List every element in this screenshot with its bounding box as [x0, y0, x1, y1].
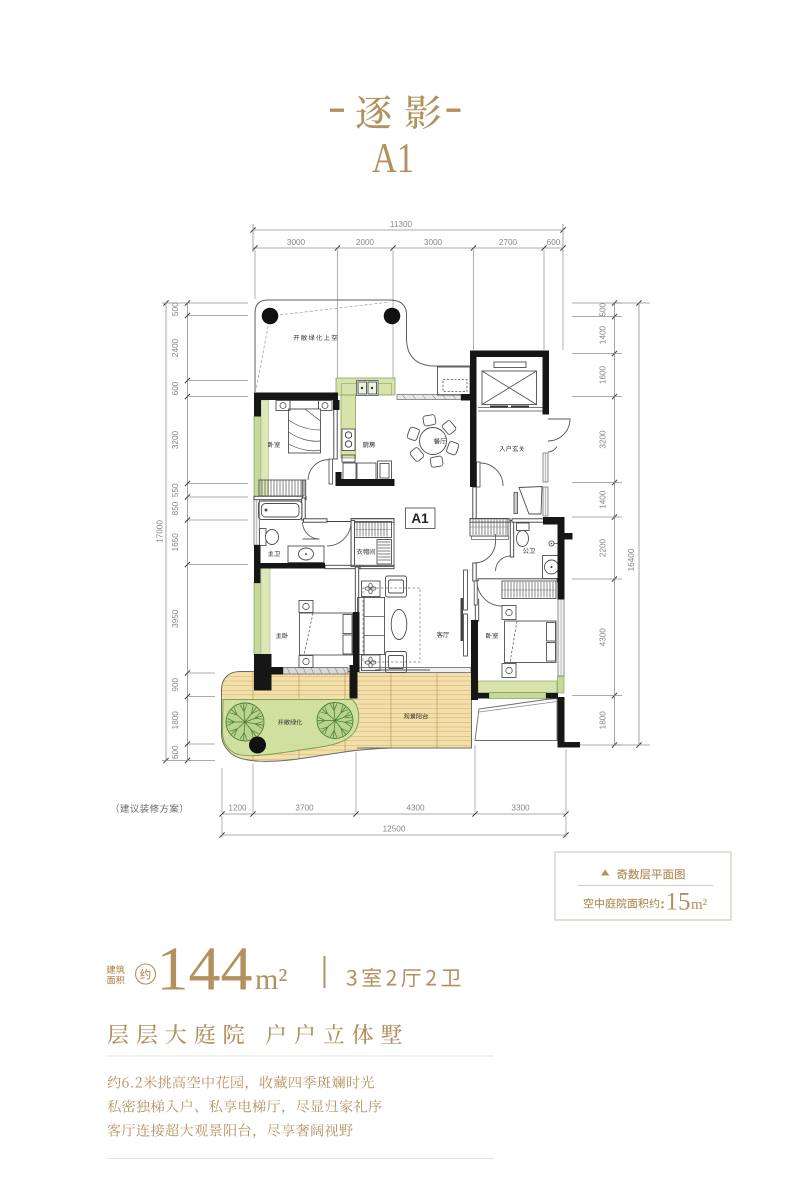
svg-text:1400: 1400	[599, 325, 608, 344]
svg-text:500: 500	[171, 302, 180, 316]
svg-text:500: 500	[599, 302, 608, 316]
svg-text:600: 600	[547, 238, 561, 247]
svg-text:1800: 1800	[599, 711, 608, 730]
svg-text:3200: 3200	[599, 430, 608, 449]
svg-text:1800: 1800	[171, 711, 180, 730]
svg-text:850: 850	[171, 501, 180, 515]
svg-text:2000: 2000	[356, 238, 375, 247]
svg-text:16400: 16400	[627, 548, 636, 571]
svg-text:600: 600	[171, 745, 180, 759]
svg-text:600: 600	[171, 381, 180, 395]
svg-text:17000: 17000	[156, 520, 165, 543]
svg-text:3000: 3000	[287, 238, 306, 247]
svg-text:m²: m²	[255, 963, 287, 996]
svg-text:3000: 3000	[424, 238, 443, 247]
svg-text:900: 900	[171, 677, 180, 691]
svg-text:3200: 3200	[171, 430, 180, 449]
svg-text:550: 550	[171, 483, 180, 497]
svg-text:144: 144	[157, 936, 253, 1004]
svg-text:4300: 4300	[406, 804, 425, 813]
svg-text:11300: 11300	[390, 220, 413, 229]
svg-text:3950: 3950	[171, 609, 180, 628]
svg-text:15: 15	[666, 889, 691, 916]
svg-text:A1: A1	[372, 136, 414, 182]
svg-text:2400: 2400	[171, 338, 180, 357]
svg-text:A1: A1	[411, 511, 429, 526]
svg-text:2200: 2200	[599, 538, 608, 557]
svg-text:1650: 1650	[171, 533, 180, 552]
svg-text:12500: 12500	[383, 825, 406, 834]
svg-text:4300: 4300	[599, 628, 608, 647]
svg-text:2700: 2700	[499, 238, 518, 247]
svg-text:3700: 3700	[295, 804, 314, 813]
svg-text:m²: m²	[691, 897, 708, 913]
svg-text:1600: 1600	[599, 365, 608, 384]
svg-text:1200: 1200	[228, 804, 247, 813]
svg-text:3300: 3300	[511, 804, 530, 813]
svg-text:1400: 1400	[599, 490, 608, 509]
